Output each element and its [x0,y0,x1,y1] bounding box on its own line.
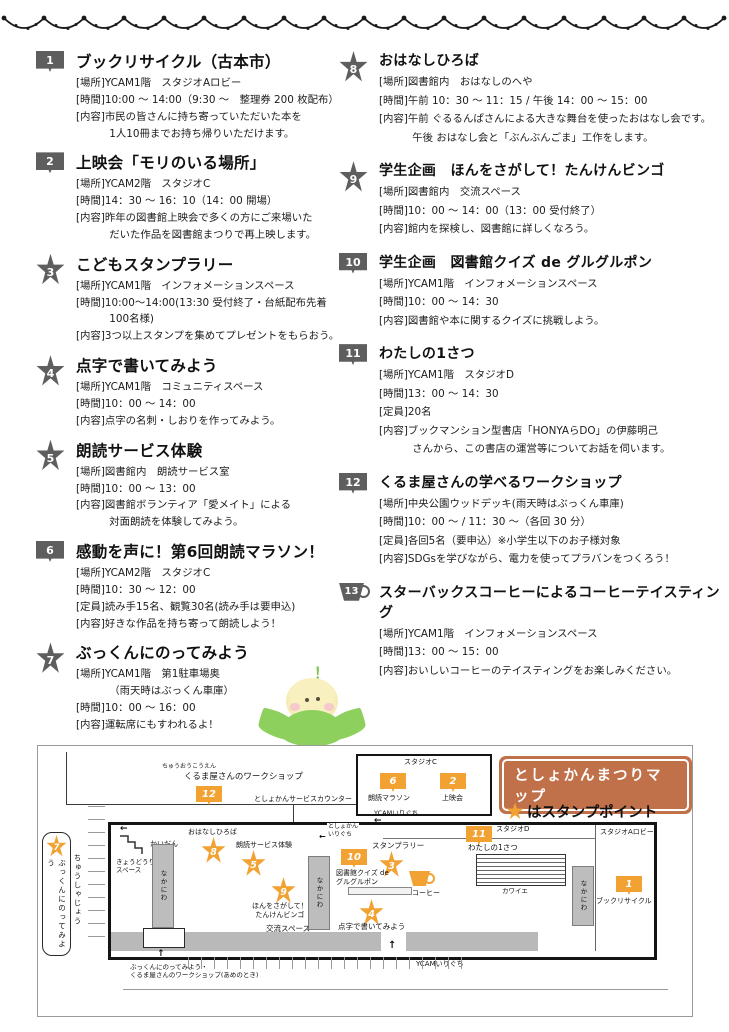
map-label-tenji: 点字で書いてみよう [338,922,405,931]
cup-badge-icon: 13 [339,583,364,601]
detail-label: [場所] [379,278,408,290]
map-label-studio-c: スタジオC [404,758,437,767]
event-title: 感動を声に！第6回朗読マラソン！ [76,540,340,562]
event-details: [場所]YCAM1階 コミュニティスペース[時間]10：00 ～ 14：00[内… [76,379,340,430]
event-details: [場所]YCAM1階 スタジオD[時間]13：00 ～ 14：30[定員]20名… [379,366,727,459]
detail-label: [内容] [76,719,105,731]
map-label-recycle: ブックリサイクル [596,897,652,906]
flyer-page: 1ブックリサイクル（古本市）[場所]YCAM1階 スタジオAロビー[時間]10:… [0,0,729,1032]
event-title: おはなしひろば [379,50,727,70]
map-label-workshop: くるま屋さんのワークショップ [184,772,303,783]
map-badge-coffee: 13 [409,871,430,886]
event-detail: [時間]13：00 ～ 15：00 [379,643,727,662]
event-item-8: 8おはなしひろば[場所]図書館内 おはなしのへや[時間]午前 10：30 ～ 1… [337,50,727,147]
map-label-rainy-plan: ぶっくんにのってみよう・ くるま屋さんのワークショップ(あめのとき) [130,963,258,979]
map-label-stamp-rally: スタンプラリー [372,841,424,850]
event-detail: [定員]各回5名（要申込）※小学生以下のお子様対象 [379,532,727,551]
event-item-4: 4点字で書いてみよう[場所]YCAM1階 コミュニティスペース[時間]10：00… [34,354,340,430]
event-details: [場所]図書館内 おはなしのへや[時間]午前 10：30 ～ 11：15 / 午… [379,73,727,147]
detail-label: [時間] [76,398,105,410]
detail-label: [時間] [379,296,408,308]
map-label-studio-a: スタジオAロビー [600,828,654,837]
map-badge-bukkun: 7 [46,835,67,858]
map-label-marathon: 朗読マラソン [368,794,410,803]
star-icon [506,803,524,821]
map-label-bukkun: ぶっくんにのってみよう [46,859,68,955]
detail-label: [時間] [379,205,408,217]
event-item-13: 13スターバックスコーヒーによるコーヒーテイスティング[場所]YCAM1階 イン… [337,582,727,681]
event-detail: [場所]YCAM2階 スタジオC [76,176,340,193]
event-details: [場所]YCAM1階 インフォメーションスペース[時間]10：00 ～ 14：3… [379,275,727,331]
star-badge-icon: 8 [339,51,368,84]
map-badge-eiga: 2 [440,773,466,792]
book-badge-icon: 1 [36,51,64,72]
event-title: 上映会「モリのいる場所」 [76,151,340,173]
map-courtyard: なかにわ [152,844,174,928]
event-detail: [時間]午前 10：30 ～ 11：15 / 午後 14：00 ～ 15：00 [379,92,727,111]
event-detail: [場所]YCAM1階 コミュニティスペース [76,379,340,396]
event-details: [場所]YCAM1階 スタジオAロビー[時間]10:00 ～ 14:00（9:3… [76,75,340,142]
detail-label: [定員] [379,535,408,547]
event-detail: [内容]点字の名刺・しおりを作ってみよう。 [76,413,340,430]
event-detail: [場所]YCAM1階 スタジオAロビー [76,75,340,92]
detail-label: [定員] [379,406,408,418]
event-detail: [場所]図書館内 おはなしのへや [379,73,727,92]
mascot-bukkun: ！ [262,662,362,744]
event-title: くるま屋さんの学べるワークショップ [379,472,727,492]
event-title: 学生企画 図書館クイズ de グルグルポン [379,252,727,272]
detail-label: [時間] [76,584,105,596]
event-details: [場所]図書館内 交流スペース[時間]10：00 ～ 14：00（13：00 受… [379,183,727,239]
map-room-studio-c: スタジオC 6 朗読マラソン 2 上映会 [356,754,492,816]
event-detail: [場所]YCAM1階 インフォメーションスペース [379,625,727,644]
event-detail: [場所]中央公園ウッドデッキ(雨天時はぶっくん車庫) [379,495,727,514]
detail-label: [場所] [379,628,408,640]
map-badge-marathon: 6 [380,773,406,792]
event-detail: [場所]YCAM1階 インフォメーションスペース [379,275,727,294]
detail-label: [時間] [76,483,105,495]
map-label-watashi: わたしの1さつ [468,843,518,852]
map-courtyard: なかにわ [308,856,330,930]
event-detail: [場所]図書館内 朗読サービス室 [76,464,340,481]
book-badge-icon: 11 [339,344,367,365]
event-detail: [内容]ブックマンション型書店「HONYAらDO」の伊藤明己 さんから、この書店… [379,422,727,459]
detail-label: [場所] [379,186,408,198]
event-detail: [内容]SDGsを学びながら、電力を使ってプラバンをつくろう！ [379,550,727,569]
event-detail: [内容]3つ以上スタンプを集めてプレゼントをもらおう。 [76,328,340,345]
arrow-left-icon: ← [319,832,326,841]
event-item-1: 1ブックリサイクル（古本市）[場所]YCAM1階 スタジオAロビー[時間]10:… [34,50,340,142]
event-title: ブックリサイクル（古本市） [76,50,340,72]
event-detail: [場所]YCAM2階 スタジオC [76,565,340,582]
event-title: スターバックスコーヒーによるコーヒーテイスティング [379,582,727,622]
event-detail: [内容]昨年の図書館上映会で多くの方にご来場いた だいた作品を図書館まつりで再上… [76,210,340,244]
arrow-left-icon: ← [120,824,128,834]
event-item-2: 2上映会「モリのいる場所」[場所]YCAM2階 スタジオC[時間]14：30 ～… [34,151,340,243]
detail-label: [時間] [76,195,105,207]
mascot-pod-front [262,708,362,748]
detail-label: [場所] [76,668,105,680]
detail-label: [内容] [76,618,105,630]
map-label-roudoku: 朗読サービス体験 [236,841,292,850]
detail-label: [場所] [76,466,105,478]
map-badge-workshop: 12 [196,786,222,805]
book-badge-icon: 2 [36,152,64,173]
star-badge-icon: 3 [36,254,65,287]
event-title: 朗読サービス体験 [76,439,340,461]
detail-label: [内容] [379,425,408,437]
event-title: 点字で書いてみよう [76,354,340,376]
event-title: ぶっくんにのってみよう [76,641,340,663]
event-detail: [場所]YCAM1階 インフォメーションスペース [76,278,340,295]
star-badge-icon: 5 [36,440,65,473]
event-detail: [定員]読み手15名、観覧30名(読み手は要申込) [76,599,340,616]
event-detail: [定員]20名 [379,403,727,422]
event-details: [場所]中央公園ウッドデッキ(雨天時はぶっくん車庫)[時間]10：00 ～ / … [379,495,727,569]
event-detail: [場所]YCAM1階 スタジオD [379,366,727,385]
map-label-chuo-koen: ちゅうおうこうえん [162,763,216,771]
detail-label: [場所] [379,76,408,88]
map-label-kawaie: カワイエ [502,887,528,895]
detail-label: [内容] [76,499,105,511]
detail-label: [時間] [76,702,105,714]
events-column-left: 1ブックリサイクル（古本市）[場所]YCAM1階 スタジオAロビー[時間]10:… [34,50,340,743]
detail-label: [場所] [76,77,105,89]
detail-label: [場所] [76,178,105,190]
event-detail: [時間]10：00 ～ / 11：30 ～（各回 30 分） [379,513,727,532]
detail-label: [時間] [76,297,105,309]
map-label-parking: ちゅうしゃじょう [72,854,83,926]
map-coffee-counter [348,887,412,895]
event-detail: [内容]午前 ぐるるんぱさんによる大きな舞台を使ったおはなし会です。 午後 おは… [379,110,727,147]
event-detail: [時間]10：00 ～ 14：00 [76,396,340,413]
detail-label: [場所] [76,567,105,579]
detail-label: [場所] [379,498,408,510]
detail-label: [場所] [76,280,105,292]
detail-label: [定員] [76,601,105,613]
detail-label: [内容] [379,223,408,235]
map-courtyard: なかにわ [572,866,594,926]
event-details: [場所]YCAM1階 インフォメーションスペース[時間]13：00 ～ 15：0… [379,625,727,681]
detail-label: [時間] [379,516,408,528]
detail-label: [場所] [379,369,408,381]
event-detail: [時間]14：30 ～ 16：10（14：00 開場） [76,193,340,210]
map-label-bingo: ほんをさがして！ たんけんビンゴ [252,902,308,920]
detail-label: [時間] [379,388,408,400]
detail-label: [時間] [76,94,105,106]
map-line [123,989,668,990]
event-detail: [内容]市民の皆さんに持ち寄っていただいた本を 1人10冊までお持ち帰りいただけ… [76,109,340,143]
garland-decoration [0,6,729,42]
detail-label: [内容] [76,111,105,123]
detail-label: [場所] [76,381,105,393]
detail-label: [内容] [379,113,408,125]
events-column-right: 8おはなしひろば[場所]図書館内 おはなしのへや[時間]午前 10：30 ～ 1… [337,50,727,693]
detail-label: [内容] [76,415,105,427]
event-details: [場所]YCAM1階 インフォメーションスペース[時間]10:00～14:00(… [76,278,340,345]
pod-icon [280,710,344,746]
detail-label: [時間] [379,646,408,658]
event-detail: [時間]13：00 ～ 14：30 [379,385,727,404]
star-badge-icon: 9 [339,161,368,194]
star-badge-icon: 4 [36,355,65,388]
event-detail: [時間]10:00～14:00(13:30 受付終了・台紙配布先着100名様) [76,295,340,329]
detail-label: [内容] [379,553,408,565]
event-item-12: 12くるま屋さんの学べるワークショップ[場所]中央公園ウッドデッキ(雨天時はぶっ… [337,472,727,569]
map-pointer-line [293,804,294,824]
star-badge-icon: 7 [36,642,65,675]
map-kawaie [476,854,566,886]
event-item-10: 10学生企画 図書館クイズ de グルグルポン[場所]YCAM1階 インフォメー… [337,252,727,331]
event-item-9: 9学生企画 ほんをさがして！たんけんビンゴ[場所]図書館内 交流スペース[時間]… [337,160,727,239]
detail-label: [内容] [379,665,408,677]
map-label-service-counter: としょかんサービスカウンター [254,795,352,804]
map-label-library-entrance: としょかん いりぐち [327,823,359,838]
event-item-3: 3こどもスタンプラリー[場所]YCAM1階 インフォメーションスペース[時間]1… [34,253,340,345]
event-detail: [場所]図書館内 交流スペース [379,183,727,202]
map-corridor [406,932,538,951]
event-details: [場所]YCAM2階 スタジオC[時間]10：30 ～ 12：00[定員]読み手… [76,565,340,632]
map-label-quiz: 図書館クイズ de グルグルポン [336,869,389,887]
eye-icon [316,697,320,701]
festival-map: ちゅうおうこうえん くるま屋さんのワークショップ 12 としょかんサービスカウン… [37,745,693,1017]
event-detail: [内容]好きな作品を持ち寄って朗読しよう！ [76,616,340,633]
map-label-studio-d: スタジオD [496,825,529,834]
event-title: わたしの1さつ [379,343,727,363]
map-label-ohanashi: おはなしひろば [188,828,237,837]
book-badge-icon: 10 [339,253,367,274]
map-line [66,752,67,804]
map-legend-text: はスタンプポイント [527,801,657,822]
event-detail: [時間]10：00 ～ 14：30 [379,293,727,312]
map-label-eiga: 上映会 [442,794,463,803]
event-detail: [時間]10：30 ～ 12：00 [76,582,340,599]
event-detail: [内容]おいしいコーヒーのテイスティングをお楽しみください。 [379,662,727,681]
event-details: [場所]YCAM2階 スタジオC[時間]14：30 ～ 16：10（14：00 … [76,176,340,243]
eye-icon [305,698,309,702]
map-parking-ticks-left [88,806,105,946]
map-label-coffee: コーヒー [412,889,440,898]
event-item-6: 6感動を声に！第6回朗読マラソン！[場所]YCAM2階 スタジオC[時間]10：… [34,540,340,632]
event-item-11: 11わたしの1さつ[場所]YCAM1階 スタジオD[時間]13：00 ～ 14：… [337,343,727,459]
event-detail: [時間]10:00 ～ 14:00（9:30 ～ 整理券 200 枚配布） [76,92,340,109]
event-detail: [時間]10：00 ～ 13：00 [76,481,340,498]
map-line [595,825,596,951]
map-line [66,804,356,805]
event-detail: [内容]図書館ボランティア「愛メイト」による 対面朗読を体験してみよう。 [76,497,340,531]
map-bukkun-pill: 7 ぶっくんにのってみよう [42,832,71,956]
map-garage-box [143,928,185,948]
event-title: 学生企画 ほんをさがして！たんけんビンゴ [379,160,727,180]
event-details: [場所]図書館内 朗読サービス室[時間]10：00 ～ 13：00[内容]図書館… [76,464,340,531]
stairs-icon [118,832,146,856]
arrow-up-icon: ↑ [388,940,396,951]
event-title: こどもスタンプラリー [76,253,340,275]
book-badge-icon: 6 [36,541,64,562]
event-detail: [時間]10：00 ～ 14：00（13：00 受付終了） [379,202,727,221]
event-detail: [内容]図書館や本に関するクイズに挑戦しよう。 [379,312,727,331]
event-item-5: 5朗読サービス体験[場所]図書館内 朗読サービス室[時間]10：00 ～ 13：… [34,439,340,531]
arrow-up-icon: ↑ [157,949,165,959]
detail-label: [内容] [76,330,105,342]
map-legend: はスタンプポイント [506,801,657,822]
detail-label: [時間] [379,95,408,107]
event-detail: [内容]館内を探検し、図書館に詳しくなろう。 [379,220,727,239]
detail-label: [内容] [76,212,105,224]
book-badge-icon: 12 [339,473,367,494]
detail-label: [内容] [379,315,408,327]
